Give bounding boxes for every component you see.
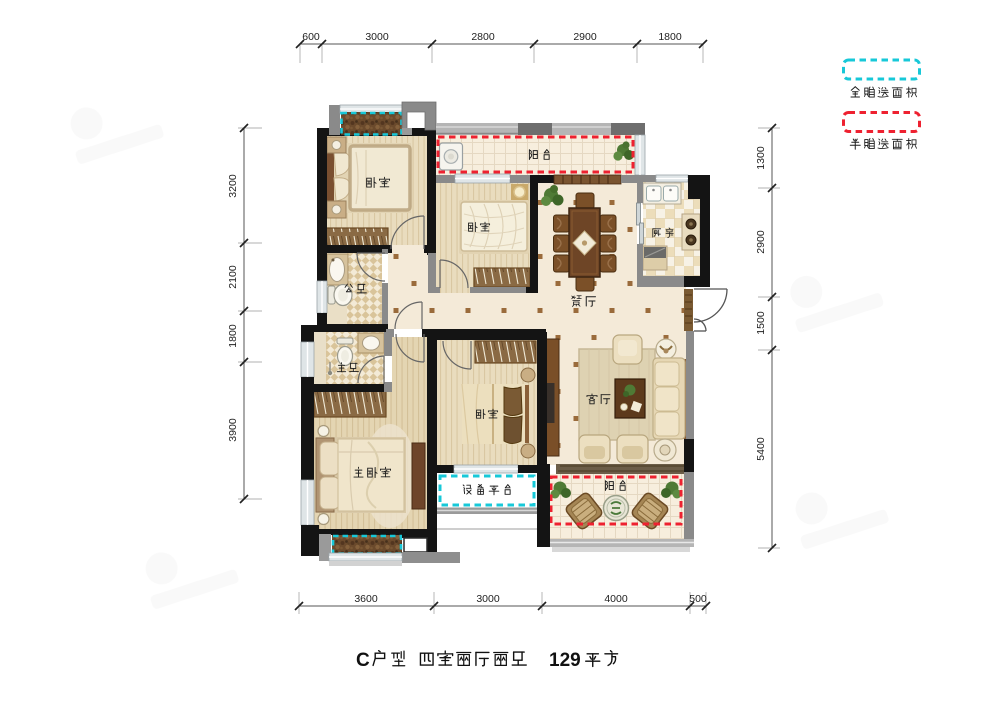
svg-text:3000: 3000 bbox=[476, 593, 500, 605]
svg-text:5400: 5400 bbox=[755, 437, 767, 461]
svg-text:500: 500 bbox=[689, 593, 707, 605]
svg-text:2800: 2800 bbox=[471, 31, 495, 43]
svg-text:4000: 4000 bbox=[604, 593, 628, 605]
svg-text:3000: 3000 bbox=[365, 31, 389, 43]
svg-text:C: C bbox=[356, 650, 370, 671]
svg-text:3200: 3200 bbox=[227, 174, 239, 198]
svg-text:3600: 3600 bbox=[354, 593, 378, 605]
svg-text:3900: 3900 bbox=[227, 418, 239, 442]
svg-text:600: 600 bbox=[302, 31, 320, 43]
svg-text:1800: 1800 bbox=[227, 324, 239, 348]
svg-text:2900: 2900 bbox=[755, 230, 767, 254]
svg-text:1300: 1300 bbox=[755, 146, 767, 170]
svg-text:2900: 2900 bbox=[573, 31, 597, 43]
svg-text:1500: 1500 bbox=[755, 311, 767, 335]
svg-text:129: 129 bbox=[549, 650, 581, 671]
svg-text:1800: 1800 bbox=[658, 31, 682, 43]
svg-text:2100: 2100 bbox=[227, 265, 239, 289]
